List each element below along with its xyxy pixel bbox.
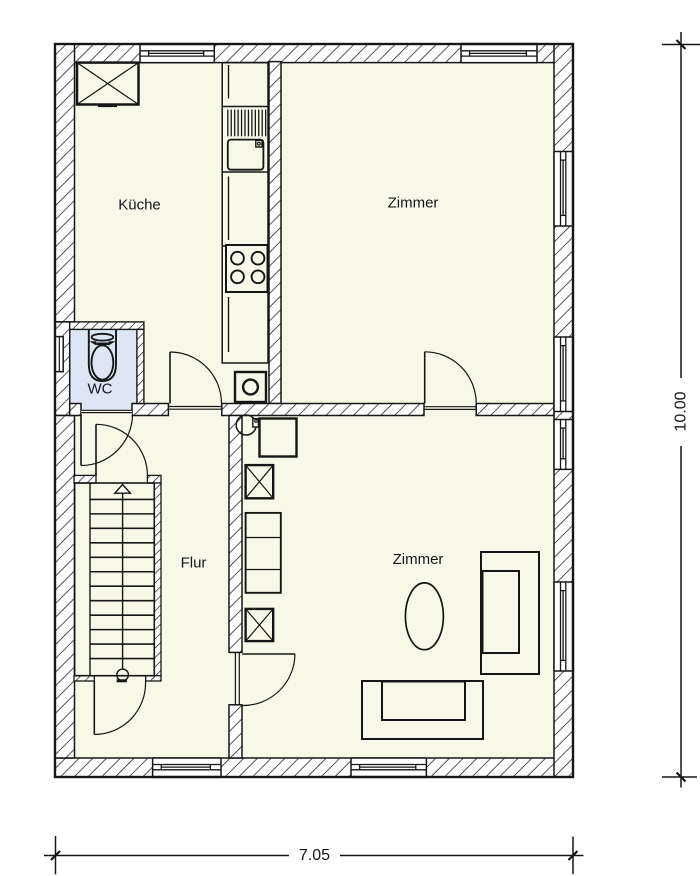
- svg-text:Küche: Küche: [118, 197, 161, 214]
- svg-text:Zimmer: Zimmer: [388, 194, 439, 211]
- svg-text:7.05: 7.05: [299, 847, 330, 864]
- svg-text:10.00: 10.00: [673, 391, 690, 431]
- svg-text:WC: WC: [88, 381, 113, 398]
- svg-text:Flur: Flur: [181, 555, 207, 572]
- svg-text:Zimmer: Zimmer: [393, 551, 444, 568]
